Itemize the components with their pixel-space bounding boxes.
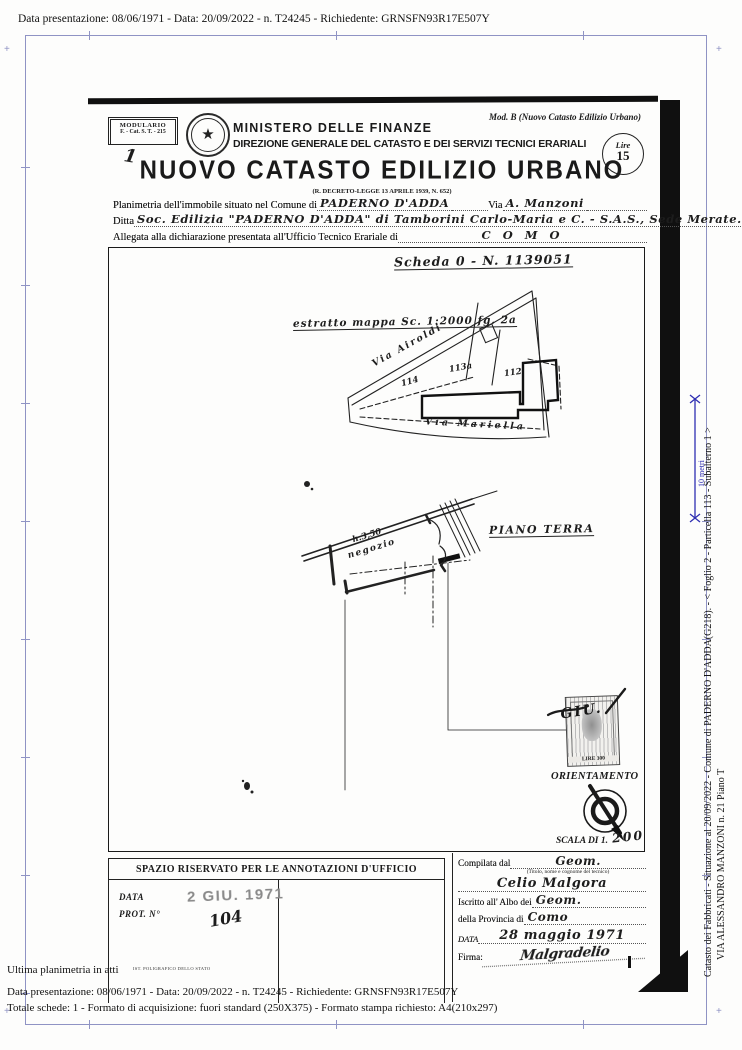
albo-label: Iscritto all' Albo dei <box>458 898 532 908</box>
protocol-number: 104 <box>208 906 244 931</box>
compiler-date-value: 28 maggio 1971 <box>478 928 646 944</box>
compiler-row-2: Celio Malgora <box>458 876 646 892</box>
law-reference: (R. DECRETO-LEGGE 13 APRILE 1939, N. 652… <box>117 188 647 195</box>
dotted-rule <box>398 242 479 243</box>
compiler-row-6: Firma: Malgradelio <box>458 946 646 963</box>
scan-edge-top <box>88 96 658 104</box>
compiler-row-1: Compilata dal Geom. <box>458 854 646 869</box>
compiler-row-4: della Provincia di Como <box>458 910 646 925</box>
frame-corner-mark: + <box>716 44 722 55</box>
floor-title: PIANO TERRA <box>489 522 595 538</box>
document-title: NUOVO CATASTO EDILIZIO URBANO <box>117 156 647 186</box>
modulario-box: MODULARIO F. - Cat. S. T. - 215 <box>108 117 178 145</box>
compiler-row-5: DATA 28 maggio 1971 <box>458 928 646 944</box>
field-ditta: Ditta Soc. Edilizia "PADERNO D'ADDA" di … <box>113 212 647 227</box>
annotations-prot-label: PROT. N° <box>119 909 160 919</box>
scale-label: SCALA DI 1. <box>556 836 608 846</box>
scale-bar-label: 10 metri <box>697 460 706 487</box>
field-ditta-value: Soc. Edilizia "PADERNO D'ADDA" di Tambor… <box>134 212 742 227</box>
frame-tick <box>21 285 30 286</box>
annotations-header: SPAZIO RISERVATO PER LE ANNOTAZIONI D'UF… <box>109 859 444 880</box>
scan-speck <box>628 956 631 968</box>
albo-value: Geom. <box>532 893 646 908</box>
stamp-value: LIRE 300 <box>568 755 619 763</box>
revenue-stamp-icon: LIRE 300 GIU. <box>565 695 620 767</box>
compiler-date-label: DATA <box>458 934 478 944</box>
field-via-label: Via <box>488 200 503 211</box>
compiler-section-border <box>452 853 453 1002</box>
printer-imprint: IST. POLIGRAFICO DELLO STATO <box>133 966 210 971</box>
field-comune: Planimetria dell'immobile situato nel Co… <box>113 196 647 211</box>
viewer-header-line: Data presentazione: 08/06/1971 - Data: 2… <box>18 13 490 25</box>
frame-tick <box>89 31 90 40</box>
field-comune-value: PADERNO D'ADDA <box>317 196 452 211</box>
field-ufficio: Allegata alla dichiarazione presentata a… <box>113 228 647 243</box>
frame-tick <box>21 757 30 758</box>
frame-tick <box>89 1020 90 1029</box>
scale-bar <box>687 392 703 524</box>
scheda-note: Scheda 0 - N. 1139051 <box>394 251 573 270</box>
emblem-star: ★ <box>201 127 214 143</box>
compiled-by-caption: (Titolo, nome e cognome del tecnico) <box>498 869 638 875</box>
frame-tick <box>21 521 30 522</box>
mod-b-label: Mod. B (Nuovo Catasto Edilizio Urbano) <box>445 112 641 122</box>
annotations-data-label: DATA <box>119 892 144 902</box>
compiler-row-3: Iscritto all' Albo dei Geom. <box>458 893 646 908</box>
provincia-value: Como <box>524 910 646 925</box>
dotted-rule <box>452 210 488 211</box>
dotted-rule <box>566 242 647 243</box>
frame-tick <box>21 875 30 876</box>
date-received-stamp: 2 GIU. 1971 <box>187 885 285 905</box>
modulario-line1: MODULARIO <box>111 120 175 129</box>
field-ditta-label: Ditta <box>113 216 134 227</box>
provincia-label: della Provincia di <box>458 915 524 925</box>
signature-label: Firma: <box>458 953 483 963</box>
frame-tick <box>21 403 30 404</box>
viewer-footer-line1: Ultima planimetria in atti <box>7 964 119 976</box>
viewer-footer-line3: Totale schede: 1 - Formato di acquisizio… <box>7 1002 497 1014</box>
orientation-label: ORIENTAMENTO <box>551 771 638 782</box>
frame-tick <box>21 167 30 168</box>
frame-left-line <box>25 35 26 1025</box>
ministero-title: MINISTERO DELLE FINANZE <box>233 121 432 135</box>
frame-tick <box>583 1020 584 1029</box>
compiled-by-label: Compilata dal <box>458 859 510 869</box>
field-ufficio-label: Allegata alla dichiarazione presentata a… <box>113 232 398 243</box>
compiled-by-value: Geom. <box>510 854 646 869</box>
field-comune-label: Planimetria dell'immobile situato nel Co… <box>113 200 317 211</box>
cadastral-viewer-page: Data presentazione: 08/06/1971 - Data: 2… <box>0 0 742 1050</box>
sidebar-cadastre-line: Catasto dei Fabbricati - Situazione al 2… <box>703 427 714 977</box>
frame-tick <box>21 639 30 640</box>
frame-tick <box>336 31 337 40</box>
sidebar-address-line: VIA ALESSANDRO MANZONI n. 21 Piano T <box>716 769 727 960</box>
scan-edge-right <box>660 100 680 988</box>
state-emblem-icon: ★ <box>186 113 230 157</box>
viewer-footer-line2: Data presentazione: 08/06/1971 - Data: 2… <box>7 986 458 998</box>
compiler-name: Celio Malgora <box>458 876 646 892</box>
frame-bottom-line <box>25 1024 707 1025</box>
dotted-rule <box>587 210 647 211</box>
frame-top-line <box>25 35 707 36</box>
frame-corner-mark: + <box>4 44 10 55</box>
field-ufficio-value: C O M O <box>479 228 567 243</box>
field-via-value: A. Manzoni <box>503 196 587 211</box>
modulario-line2: F. - Cat. S. T. - 215 <box>111 129 175 135</box>
direzione-title: DIREZIONE GENERALE DEL CATASTO E DEI SER… <box>233 138 586 150</box>
frame-tick <box>583 31 584 40</box>
signature-scribble: Malgradelio <box>482 942 647 968</box>
frame-corner-mark: + <box>716 1006 722 1017</box>
annotations-box: SPAZIO RISERVATO PER LE ANNOTAZIONI D'UF… <box>108 858 445 1003</box>
frame-tick <box>336 1020 337 1029</box>
